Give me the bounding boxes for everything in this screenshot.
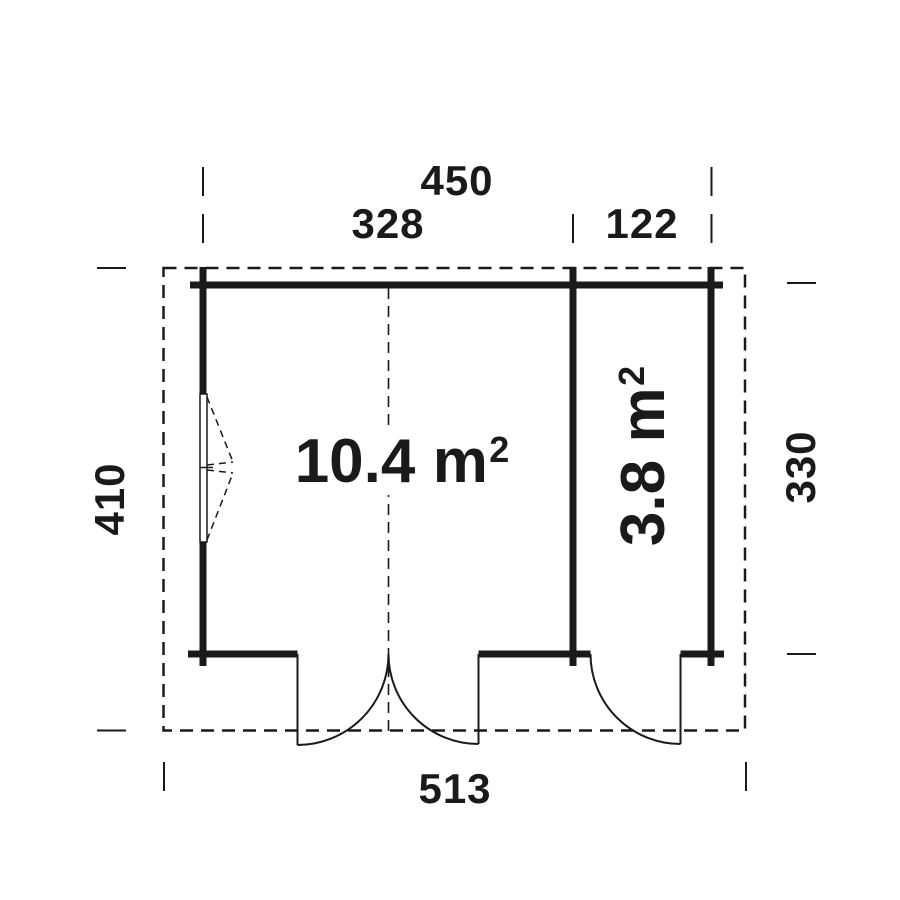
dimension-label-top-annex: 122 [605,203,678,245]
room-area-annex-exponent: 2 [611,366,652,386]
room-area-annex-unit: m [609,387,678,442]
room-area-main-exponent: 2 [489,429,509,470]
window-swing-lines [207,397,233,540]
room-area-main-value: 10.4 [295,427,416,496]
room-area-label-main: 10.4m2 [285,429,520,495]
room-area-annex-value: 3.8 [609,460,678,546]
dimension-label-bottom-total: 513 [418,768,491,810]
double-door [298,654,479,745]
dimension-label-right-height: 330 [780,430,822,503]
room-area-label-annex: 3.8m2 [611,356,677,556]
dimension-label-top-main: 328 [351,203,424,245]
floor-plan-canvas: 450 328 122 410 330 513 10.4m2 3.8m2 [0,0,900,900]
window [200,394,233,542]
dimension-label-left-height: 410 [89,462,131,535]
dimension-label-top-total: 450 [420,160,493,202]
room-area-main-unit: m [433,427,488,496]
